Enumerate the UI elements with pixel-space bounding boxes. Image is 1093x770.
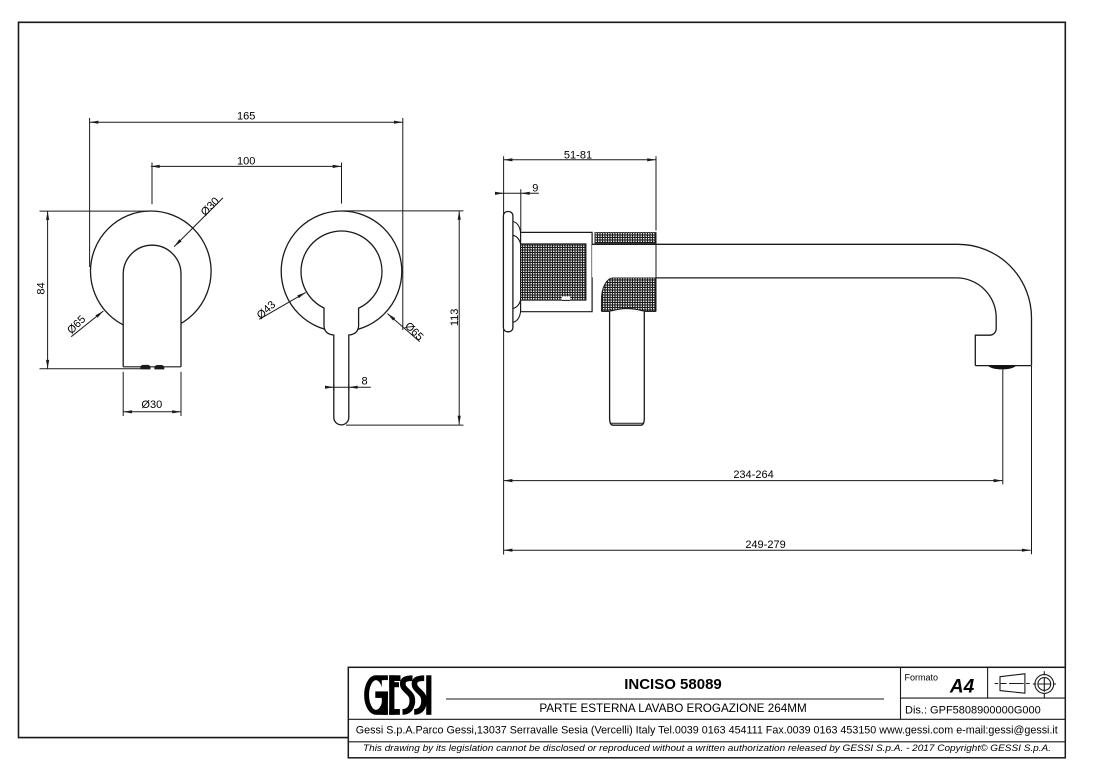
svg-text:9: 9 [532, 182, 538, 194]
svg-text:Gessi S.p.A.Parco Gessi,13037: Gessi S.p.A.Parco Gessi,13037 Serravalle… [356, 725, 1058, 737]
svg-text:A4: A4 [949, 677, 975, 698]
svg-text:165: 165 [237, 110, 255, 122]
svg-text:PARTE ESTERNA LAVABO EROGAZION: PARTE ESTERNA LAVABO EROGAZIONE 264MM [539, 702, 806, 715]
svg-text:8: 8 [362, 376, 368, 388]
svg-text:234-264: 234-264 [733, 469, 773, 481]
svg-text:INCISO 58089: INCISO 58089 [624, 676, 722, 693]
svg-text:Formato: Formato [905, 673, 939, 683]
svg-text:51-81: 51-81 [564, 149, 592, 161]
svg-text:Ø30: Ø30 [141, 399, 162, 411]
svg-text:113: 113 [449, 309, 461, 327]
svg-text:84: 84 [36, 282, 48, 294]
svg-text:Dis.: GPF5808900000G000: Dis.: GPF5808900000G000 [905, 705, 1041, 717]
svg-text:100: 100 [237, 156, 255, 168]
svg-text:This drawing by its legislatio: This drawing by its legislation cannot b… [363, 743, 1051, 754]
svg-text:249-279: 249-279 [745, 539, 785, 551]
